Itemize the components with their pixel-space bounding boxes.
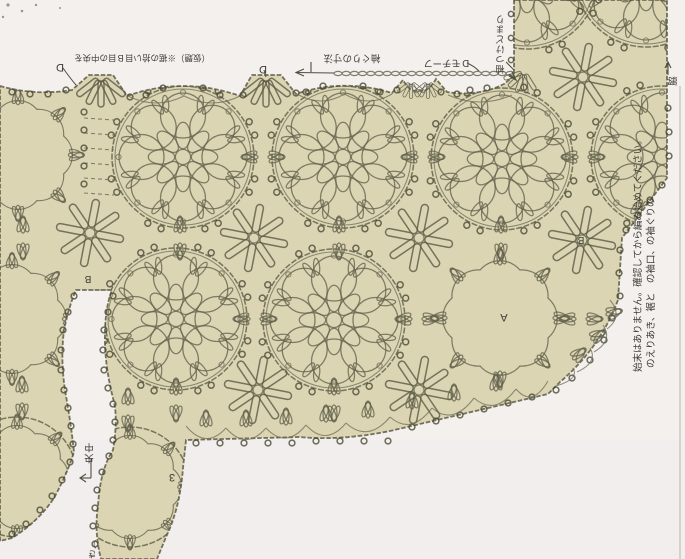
svg-text:け: け [495,44,504,54]
svg-text:（仮題）※裾の拾い目Ｂ目の中央を: （仮題）※裾の拾い目Ｂ目の中央を [74,53,210,63]
svg-text:B: B [84,273,91,284]
svg-text:り: り [495,14,504,24]
svg-text:Ｄモチーフ: Ｄモチーフ [424,57,471,68]
svg-text:B: B [577,234,584,245]
svg-text:ど: ど [495,34,504,44]
svg-text:3: 3 [169,471,175,483]
svg-text:袖: 袖 [495,64,504,75]
svg-text:D: D [259,63,267,75]
svg-text:央: 央 [84,452,94,464]
svg-text:）: ） [87,539,96,549]
svg-text:ま: ま [495,24,504,34]
svg-text:脇: 脇 [668,76,679,86]
svg-text:D: D [56,61,64,73]
svg-text:中: 中 [84,441,94,453]
svg-text:き: き [87,549,96,559]
svg-text:のえりあき、裾と の袖口、の袖ぐりの: のえりあき、裾と の袖口、の袖ぐりの [645,198,657,368]
svg-text:A: A [500,311,508,323]
svg-text:つ: つ [495,54,504,64]
svg-text:始末はありません。確認してから編み始めてください。: 始末はありません。確認してから編み始めてください。 [632,135,644,372]
svg-text:袖ぐりの寸法: 袖ぐりの寸法 [323,52,380,64]
